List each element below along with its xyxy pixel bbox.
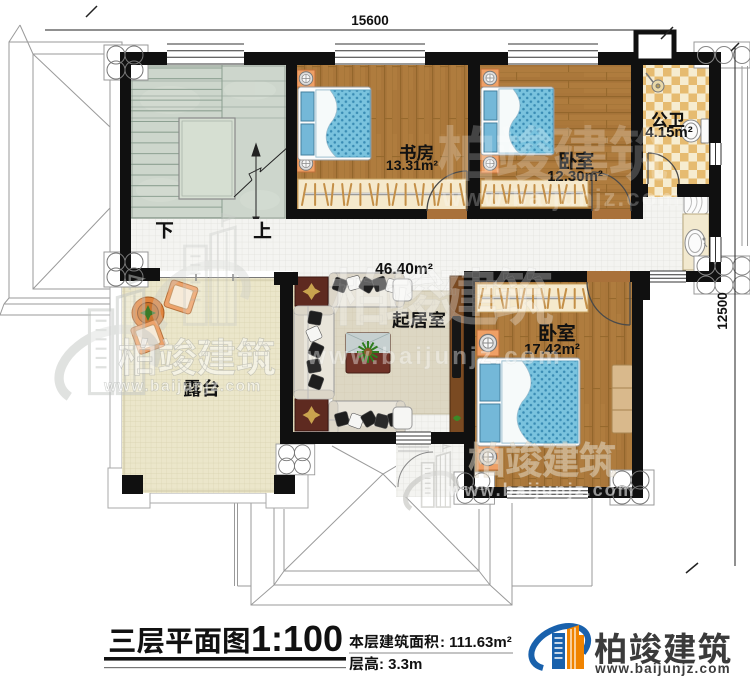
svg-text:1:100: 1:100 <box>251 618 343 659</box>
svg-text:www.baijunjz.com: www.baijunjz.com <box>447 480 635 500</box>
svg-text:www.baijunjz.com: www.baijunjz.com <box>103 378 262 395</box>
svg-text:www.baijunjz.com: www.baijunjz.com <box>594 661 731 676</box>
svg-text:13.31m²: 13.31m² <box>386 157 438 173</box>
svg-text:: 111.63m²: : 111.63m² <box>440 634 512 651</box>
svg-text:www.baijunjz.com: www.baijunjz.com <box>441 185 681 212</box>
svg-text:12500: 12500 <box>715 292 730 330</box>
svg-text:www.baijunjz.com: www.baijunjz.com <box>306 343 562 370</box>
svg-text:: 3.3m: : 3.3m <box>379 656 422 673</box>
svg-text:15600: 15600 <box>351 13 389 28</box>
